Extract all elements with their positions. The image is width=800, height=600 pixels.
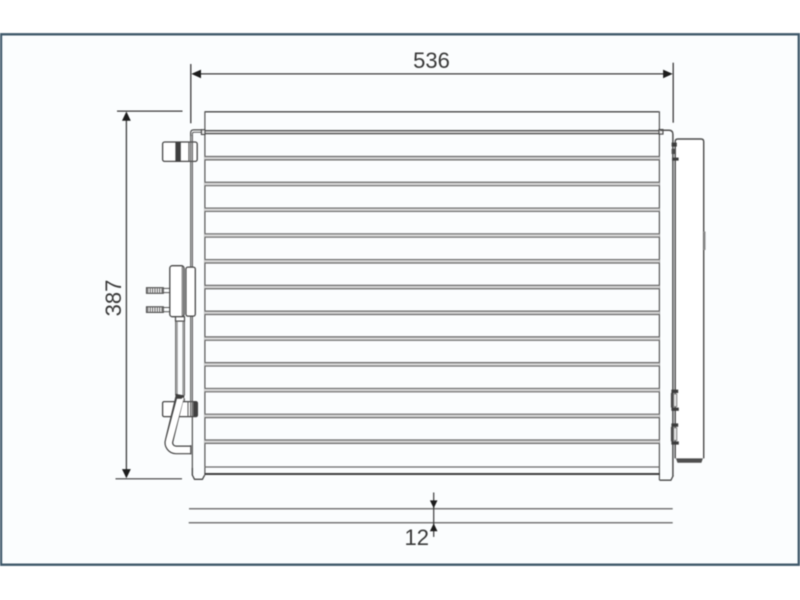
svg-text:387: 387 xyxy=(101,280,126,317)
svg-text:12: 12 xyxy=(405,525,429,550)
svg-text:536: 536 xyxy=(413,48,450,73)
